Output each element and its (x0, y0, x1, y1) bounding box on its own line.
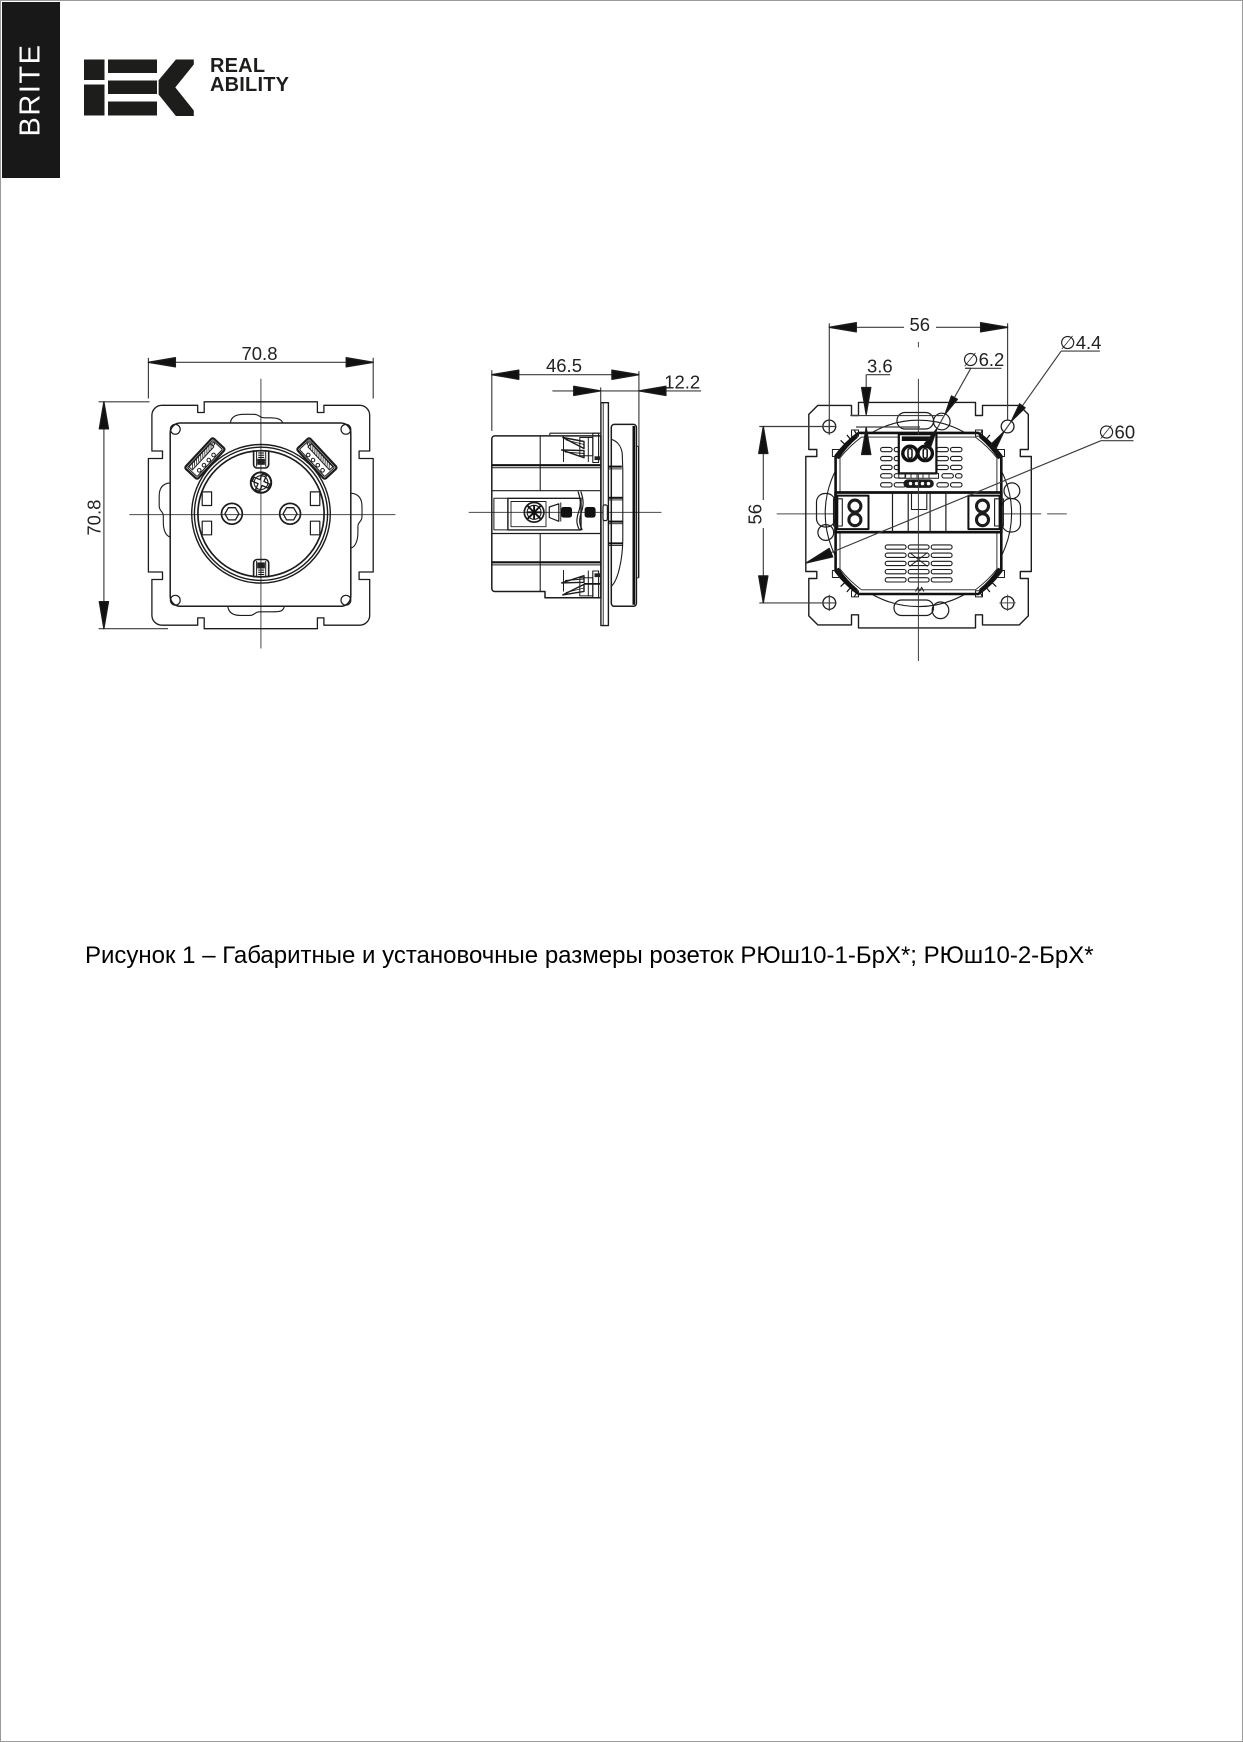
svg-text:70.8: 70.8 (241, 343, 277, 364)
svg-text:70.8: 70.8 (84, 500, 105, 536)
svg-text:56: 56 (910, 314, 931, 335)
svg-text:46.5: 46.5 (546, 355, 582, 376)
svg-text:∅4.4: ∅4.4 (1060, 332, 1102, 353)
svg-text:∅60: ∅60 (1098, 422, 1135, 443)
svg-text:3.6: 3.6 (867, 355, 893, 376)
svg-text:12.2: 12.2 (664, 372, 700, 393)
svg-text:56: 56 (744, 504, 765, 525)
svg-text:∅6.2: ∅6.2 (962, 349, 1004, 370)
